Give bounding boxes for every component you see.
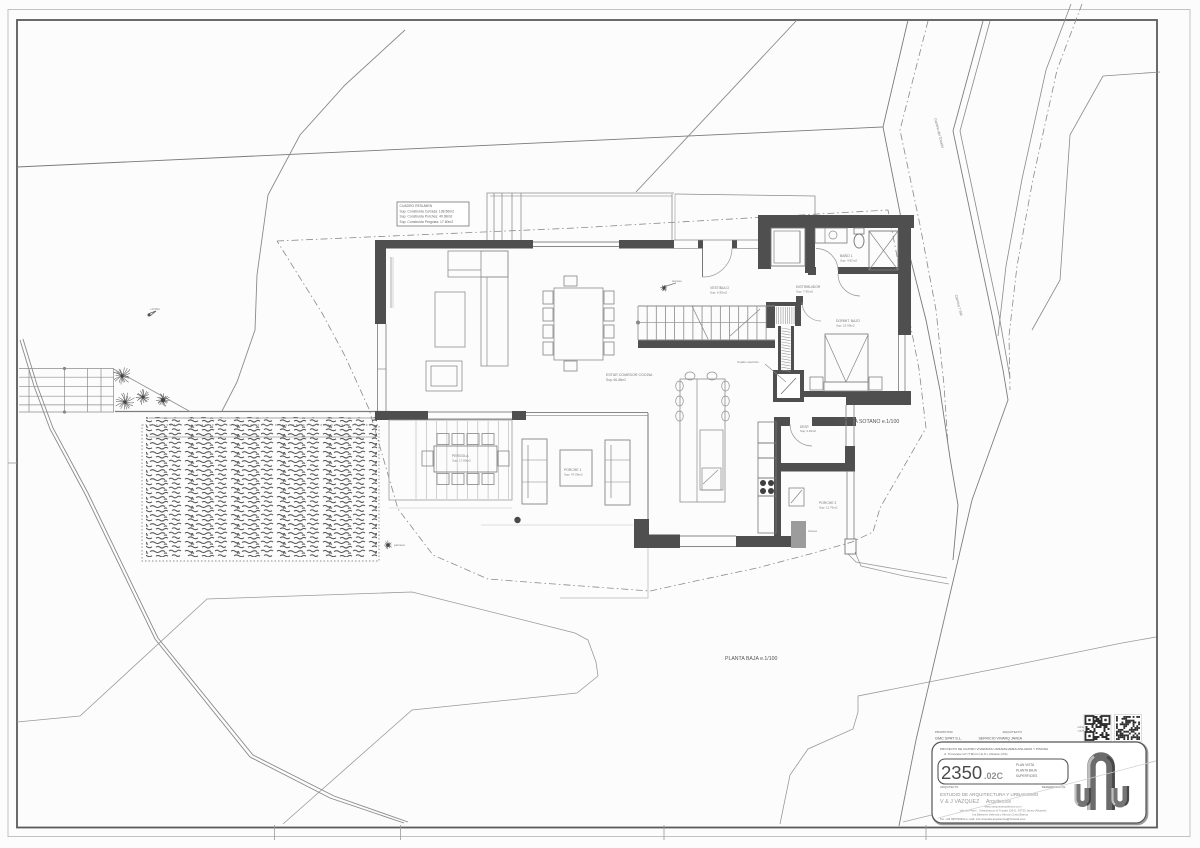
svg-text:Acceso: Acceso <box>672 279 682 283</box>
svg-text:valida: valida <box>1077 725 1084 729</box>
svg-text:VESTIBULO: VESTIBULO <box>710 286 729 290</box>
svg-text:SERVICIO VIVARQ JAVEA: SERVICIO VIVARQ JAVEA <box>978 737 1022 741</box>
svg-text:PORCHE 1: PORCHE 1 <box>564 468 581 472</box>
svg-text:Sup. Construida Pergolas: 17.8: Sup. Construida Pergolas: 17.80m2 <box>400 220 454 224</box>
svg-text:PERGOLA: PERGOLA <box>452 454 469 458</box>
svg-text:Sup: 66.46m2: Sup: 66.46m2 <box>606 378 626 382</box>
svg-text:PLANTA BAJA: PLANTA BAJA <box>1016 769 1038 773</box>
svg-text:.02C: .02C <box>984 771 1004 781</box>
svg-text:PORCHE 2: PORCHE 2 <box>819 501 836 505</box>
svg-text:ESTUDIO DE ARQUITECTURA Y URBA: ESTUDIO DE ARQUITECTURA Y URBANISMO <box>940 792 1039 797</box>
svg-text:CUADRO RESUMEN: CUADRO RESUMEN <box>400 204 433 208</box>
svg-text:ARQUITECTO: ARQUITECTO <box>940 785 959 789</box>
svg-text:Cuadro electrico: Cuadro electrico <box>737 360 759 364</box>
svg-text:ARQUITECTO: ARQUITECTO <box>1002 730 1022 734</box>
svg-text:Sup: 7.95m2: Sup: 7.95m2 <box>796 290 813 294</box>
svg-text:Sup: 47.09m2: Sup: 47.09m2 <box>564 473 583 477</box>
svg-text:cl. Torrevieja n17 (T.Morro U: cl. Torrevieja n17 (T.Morro Up 8.), Alic… <box>944 752 1007 756</box>
svg-text:PROYECTO DE CUATRO VIVIENDAS U: PROYECTO DE CUATRO VIVIENDAS UNIFAMILIAR… <box>940 747 1049 751</box>
svg-text:PLANTA SOTANO e.1/100: PLANTA SOTANO e.1/100 <box>838 419 899 425</box>
svg-text:Sup: 2.93m2: Sup: 2.93m2 <box>800 429 816 433</box>
svg-text:BAÑO 1: BAÑO 1 <box>840 253 853 258</box>
svg-text:PLAN VISTA: PLAN VISTA <box>1016 763 1035 767</box>
svg-text:copia: copia <box>1078 729 1085 733</box>
svg-text:Tel. +34 965793224 e-mail: i: Tel. +34 965793224 e-mail: info.vivienda… <box>940 817 1026 821</box>
svg-text:Sup: 17.80m2: Sup: 17.80m2 <box>452 459 471 463</box>
svg-text:PLANTA BAJA e.1/100: PLANTA BAJA e.1/100 <box>725 656 777 662</box>
svg-text:Sup: 11.76m2: Sup: 11.76m2 <box>819 506 838 510</box>
svg-text:GMC SPAT S.L.: GMC SPAT S.L. <box>935 737 962 741</box>
svg-text:Aut.Baleares Valencia y Murci: Aut.Baleares Valencia y Murcia Costa Bla… <box>972 813 1029 817</box>
svg-text:Sup: 4.92m2: Sup: 4.92m2 <box>840 259 857 263</box>
svg-text:+0.00m: +0.00m <box>150 307 161 311</box>
svg-text:Sup. Construida Cerrada: 138.5: Sup. Construida Cerrada: 138.56m2 <box>400 209 455 213</box>
svg-text:Sup: 6.95m2: Sup: 6.95m2 <box>710 291 727 295</box>
svg-text:Sup: 15.99m2: Sup: 15.99m2 <box>836 324 855 328</box>
svg-text:PROMOTOR: PROMOTOR <box>935 730 953 734</box>
svg-text:Acceso: Acceso <box>808 529 818 533</box>
svg-text:SUPERFICIES: SUPERFICIES <box>1016 774 1037 778</box>
svg-text:V & J VAZQUEZ: V & J VAZQUEZ <box>940 799 980 805</box>
svg-text:DISTRIBUIDOR: DISTRIBUIDOR <box>796 285 821 289</box>
svg-text:palmera: palmera <box>394 543 405 547</box>
svg-text:DORMIT. BAJO: DORMIT. BAJO <box>836 319 860 323</box>
svg-text:Sup. Construida Porches: 40.98: Sup. Construida Porches: 40.98m2 <box>400 215 453 219</box>
svg-text:2350: 2350 <box>941 762 982 783</box>
svg-text:ESTAR COMEDOR COCINA: ESTAR COMEDOR COCINA <box>606 373 653 377</box>
